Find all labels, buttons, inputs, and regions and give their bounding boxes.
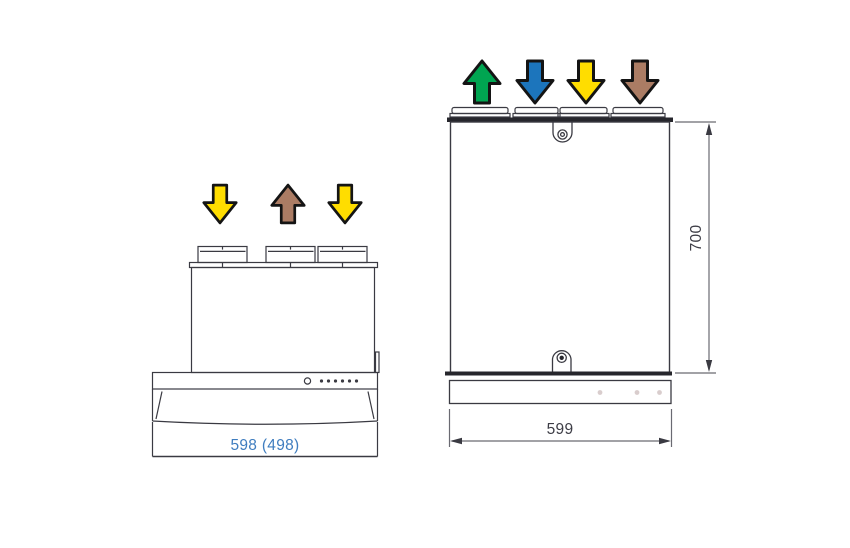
hood-arrow-2-brown-up-icon <box>270 181 306 227</box>
unit-duct-collars <box>450 108 665 118</box>
diagram-lineart <box>0 0 850 548</box>
unit-arrow-1-green-up-icon <box>462 59 502 105</box>
unit-body <box>445 118 673 376</box>
unit-arrow-4-brown-down-icon <box>620 59 660 105</box>
hood-control-panel <box>153 373 378 390</box>
hood-top-flange <box>190 263 378 268</box>
hood-width-label: 598 (498) <box>190 437 340 455</box>
unit-bottom-bracket <box>553 351 572 372</box>
unit-arrow-3-yellow-down-icon <box>566 59 606 105</box>
hood-body <box>192 268 380 373</box>
hood-spigots <box>198 247 367 263</box>
dimension-diagram: 598 (498) 599 700 <box>0 0 850 548</box>
unit-top-hanging-bracket <box>553 123 572 143</box>
unit-arrow-2-blue-down-icon <box>515 59 555 105</box>
hood-arrow-3-yellow-down-icon <box>327 181 363 227</box>
unit-width-label: 599 <box>520 421 600 439</box>
hood-arrow-1-yellow-down-icon <box>202 181 238 227</box>
unit-height-label: 700 <box>688 214 706 262</box>
unit-bottom-strip <box>450 381 672 404</box>
hood-canopy <box>153 389 378 424</box>
